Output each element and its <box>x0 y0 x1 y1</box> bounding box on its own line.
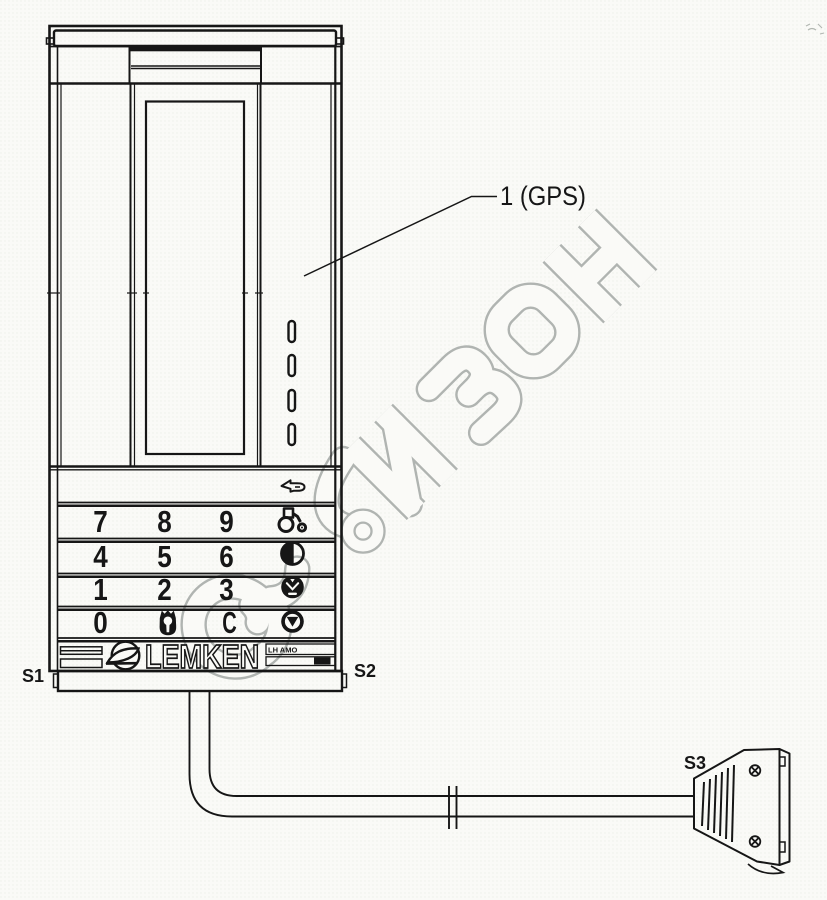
svg-text:1: 1 <box>93 572 108 607</box>
svg-text:C: C <box>222 605 237 640</box>
svg-text:0: 0 <box>93 605 108 640</box>
svg-text:2: 2 <box>157 572 172 607</box>
svg-text:1 (GPS): 1 (GPS) <box>500 181 586 211</box>
svg-text:4: 4 <box>93 539 108 574</box>
svg-text:S2: S2 <box>354 661 376 681</box>
svg-text:6: 6 <box>219 539 234 574</box>
svg-text:5: 5 <box>157 539 172 574</box>
svg-text:S3: S3 <box>684 753 706 773</box>
svg-text:8: 8 <box>157 504 172 539</box>
svg-text:7: 7 <box>93 504 108 539</box>
svg-text:S1: S1 <box>22 666 44 686</box>
svg-text:LH AMO: LH AMO <box>268 646 297 655</box>
svg-text:9: 9 <box>219 504 234 539</box>
svg-text:3: 3 <box>219 572 234 607</box>
